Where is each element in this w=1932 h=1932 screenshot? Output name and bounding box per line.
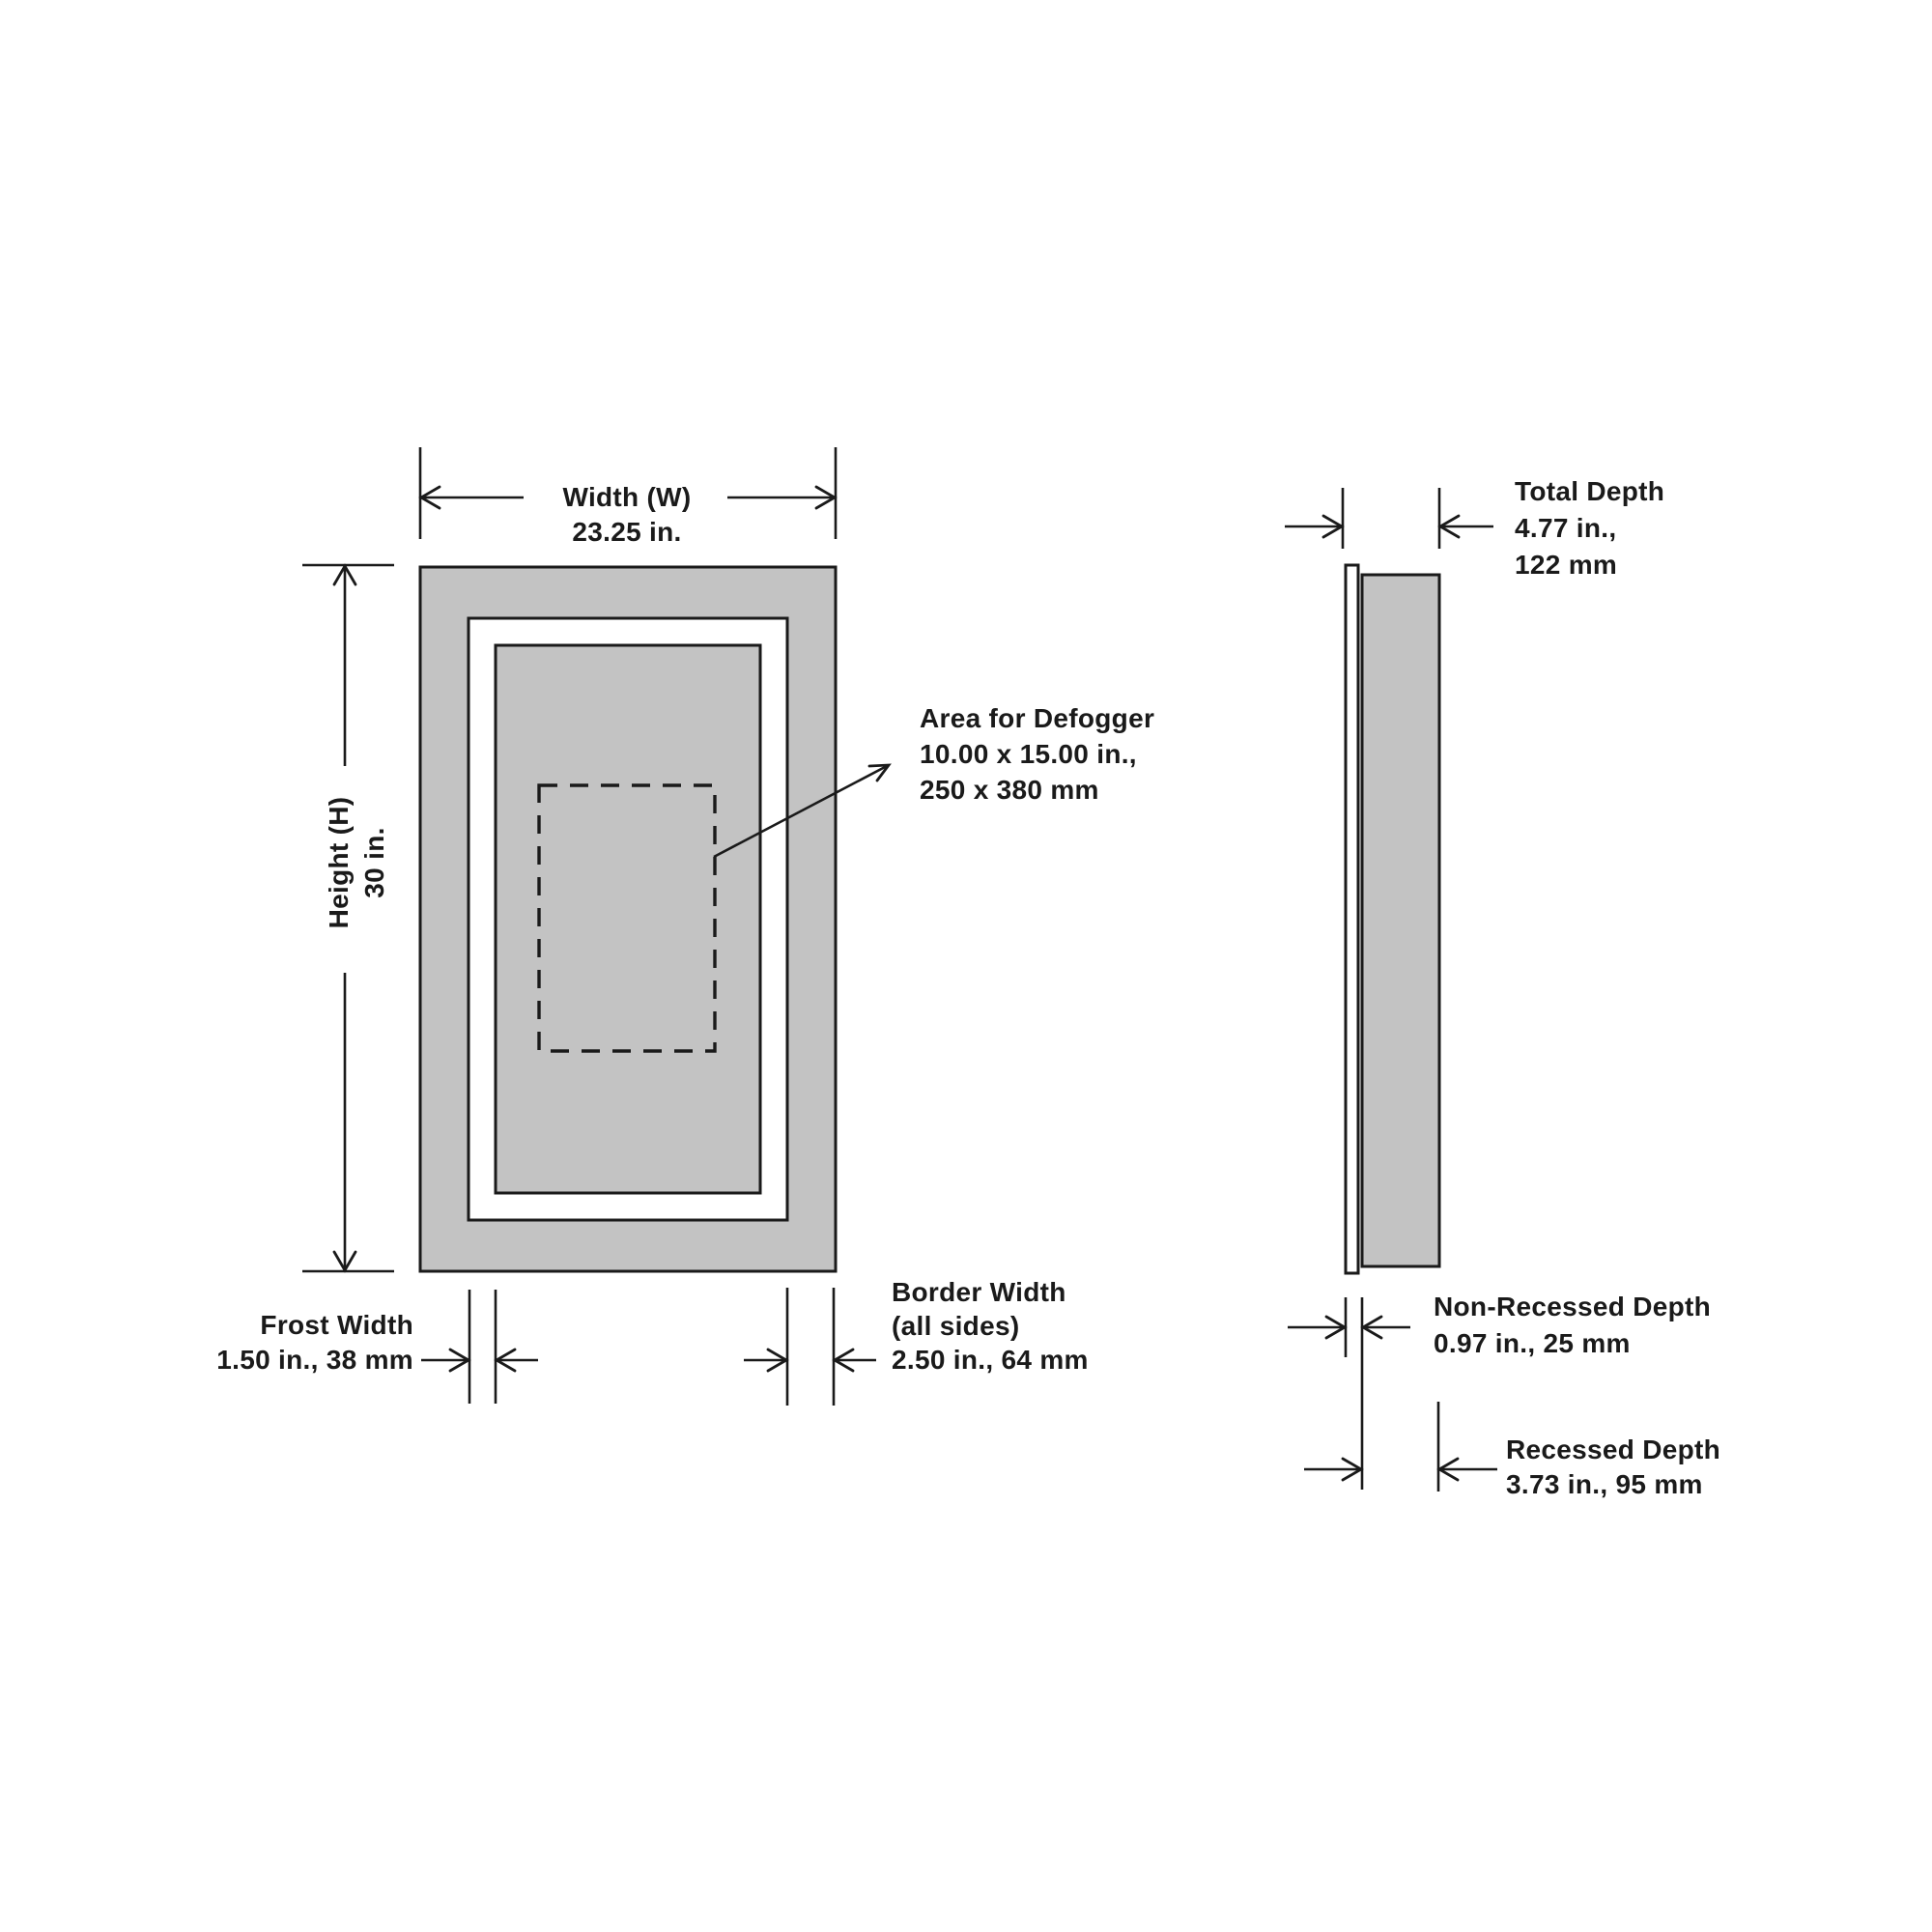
frost-width-dimension: Frost Width 1.50 in., 38 mm	[216, 1290, 538, 1404]
border-width-label: Border Width	[892, 1277, 1066, 1307]
side-view	[1346, 565, 1439, 1273]
front-view	[420, 567, 836, 1271]
non-recessed-depth-value: 0.97 in., 25 mm	[1434, 1328, 1631, 1358]
total-depth-value-in: 4.77 in.,	[1515, 513, 1616, 543]
border-width-dimension: Border Width (all sides) 2.50 in., 64 mm	[744, 1277, 1089, 1406]
width-dimension: Width (W) 23.25 in.	[420, 447, 836, 547]
height-dimension-value: 30 in.	[359, 827, 389, 897]
border-width-value: 2.50 in., 64 mm	[892, 1345, 1089, 1375]
side-cabinet-body	[1362, 575, 1439, 1266]
frost-width-label: Frost Width	[260, 1310, 413, 1340]
total-depth-value-mm: 122 mm	[1515, 550, 1617, 580]
width-dimension-value: 23.25 in.	[572, 517, 681, 547]
total-depth-dimension: Total Depth 4.77 in., 122 mm	[1285, 476, 1664, 580]
width-dimension-label: Width (W)	[562, 482, 691, 512]
defogger-size-mm: 250 x 380 mm	[920, 775, 1099, 805]
mirror-dimension-diagram: Width (W) 23.25 in. Height (H) 30 in. Ar…	[0, 0, 1932, 1932]
height-dimension: Height (H) 30 in.	[302, 565, 394, 1271]
total-depth-label: Total Depth	[1515, 476, 1664, 506]
recessed-depth-dimension: Recessed Depth 3.73 in., 95 mm	[1304, 1402, 1720, 1499]
recessed-depth-value: 3.73 in., 95 mm	[1506, 1469, 1703, 1499]
side-door-panel	[1346, 565, 1358, 1273]
defogger-title: Area for Defogger	[920, 703, 1154, 733]
diagram-svg: Width (W) 23.25 in. Height (H) 30 in. Ar…	[0, 0, 1932, 1932]
frost-width-value: 1.50 in., 38 mm	[216, 1345, 413, 1375]
recessed-depth-label: Recessed Depth	[1506, 1435, 1720, 1464]
defogger-size-in: 10.00 x 15.00 in.,	[920, 739, 1137, 769]
height-dimension-label: Height (H)	[324, 797, 354, 929]
border-width-scope: (all sides)	[892, 1311, 1019, 1341]
mirror-surface	[496, 645, 760, 1193]
non-recessed-depth-label: Non-Recessed Depth	[1434, 1292, 1711, 1321]
